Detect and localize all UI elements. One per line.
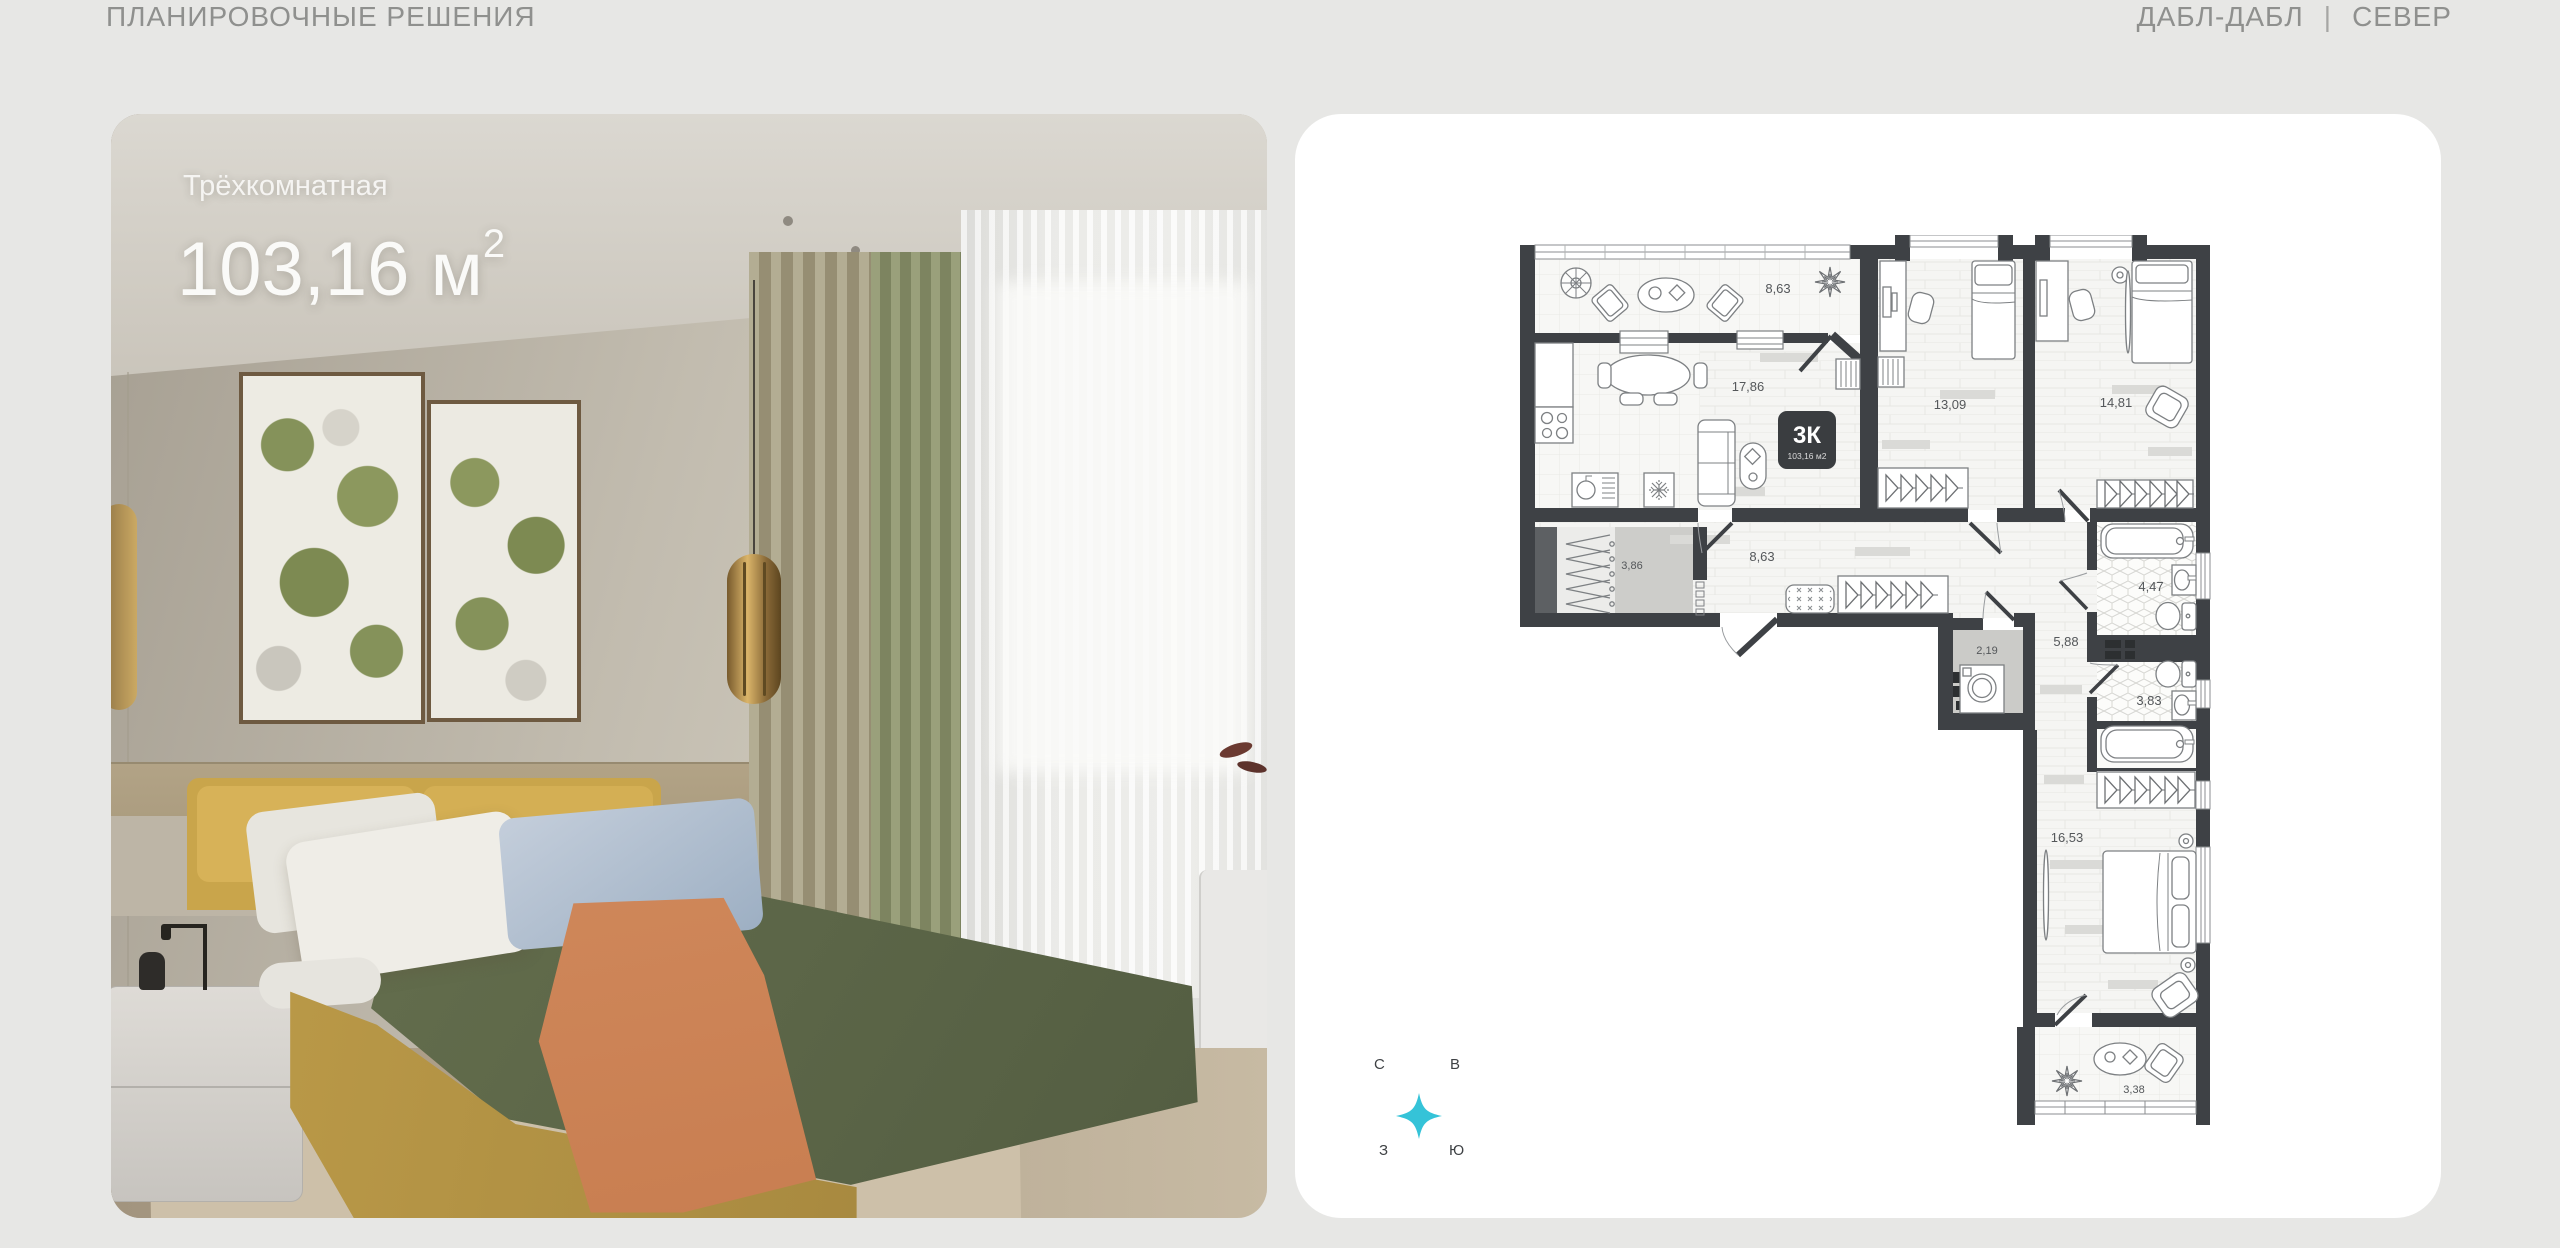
room-area-label-master-bedroom: 16,53 xyxy=(2051,830,2084,845)
room-area-label-corridor: 5,88 xyxy=(2053,634,2078,649)
nightstand-drawer-line xyxy=(111,1086,299,1088)
reading-lamp-arm xyxy=(167,924,207,928)
pendant-cord xyxy=(753,280,755,556)
room-area-label-bedroom-2: 14,81 xyxy=(2100,395,2133,410)
apartment-area: 103,16 м2 xyxy=(177,222,505,313)
floor-plan-svg: 8,63 17,86 13,09 14,81 8,63 3,86 2,19 5,… xyxy=(1520,235,2225,1125)
wall-mirror xyxy=(111,504,137,710)
compass-north: С xyxy=(1374,1056,1385,1073)
ceiling-spotlight xyxy=(783,216,793,226)
apartment-area-value: 103,16 м xyxy=(177,227,483,312)
bed-bolster xyxy=(258,956,383,1010)
plan-badge: 3К 103,16 м2 xyxy=(1778,411,1836,469)
apartment-type-label: Трёхкомнатная xyxy=(183,170,388,203)
compass-east: В xyxy=(1450,1056,1460,1073)
room-area-label-laundry: 2,19 xyxy=(1976,645,1997,657)
header-project-block: ДАБЛ-ДАБЛ | СЕВЕР xyxy=(2137,0,2452,34)
block-name: СЕВЕР xyxy=(2352,0,2452,34)
reading-lamp-head xyxy=(161,924,171,940)
project-name: ДАБЛ-ДАБЛ xyxy=(2137,0,2304,34)
room-area-label-balcony: 3,38 xyxy=(2123,1084,2144,1096)
decor-vase xyxy=(139,952,165,990)
compass-west: З xyxy=(1379,1142,1388,1159)
header-separator: | xyxy=(2324,0,2332,34)
pendant-lamp xyxy=(727,554,781,704)
reading-lamp-rod xyxy=(203,924,207,990)
header: ПЛАНИРОВОЧНЫЕ РЕШЕНИЯ ДАБЛ-ДАБЛ | СЕВЕР xyxy=(106,0,2452,52)
apartment-photo-card: Трёхкомнатная 103,16 м2 xyxy=(111,114,1267,1218)
pendant-lamp-ridge xyxy=(763,562,766,696)
page-title: ПЛАНИРОВОЧНЫЕ РЕШЕНИЯ xyxy=(106,0,536,34)
washing-machine-icon xyxy=(1960,665,2004,713)
wall-art-frame xyxy=(239,372,425,724)
floor-plan-card: 8,63 17,86 13,09 14,81 8,63 3,86 2,19 5,… xyxy=(1295,114,2441,1218)
fridge-snowflake-icon xyxy=(1649,480,1669,500)
pendant-lamp-ridge xyxy=(743,562,746,696)
room-area-label-kitchen-living: 17,86 xyxy=(1732,379,1765,394)
room-area-label-loggia: 8,63 xyxy=(1765,281,1790,296)
compass: С В З Ю xyxy=(1353,1050,1485,1182)
apartment-area-superscript: 2 xyxy=(483,222,505,266)
window-glow xyxy=(997,282,1249,772)
compass-south: Ю xyxy=(1449,1142,1464,1159)
room-area-label-wardrobe: 3,86 xyxy=(1621,560,1642,572)
nightstand xyxy=(111,986,303,1202)
room-area-label-wc: 3,83 xyxy=(2136,693,2161,708)
room-area-label-bathroom: 4,47 xyxy=(2138,579,2163,594)
wall-art-frame xyxy=(427,400,581,722)
compass-star-icon xyxy=(1391,1088,1447,1144)
room-area-label-hallway: 8,63 xyxy=(1749,549,1774,564)
badge-area: 103,16 м2 xyxy=(1788,451,1827,461)
room-area-label-bedroom-1: 13,09 xyxy=(1934,397,1967,412)
page: ПЛАНИРОВОЧНЫЕ РЕШЕНИЯ ДАБЛ-ДАБЛ | СЕВЕР xyxy=(0,0,2560,1248)
badge-type: 3К xyxy=(1793,422,1821,449)
